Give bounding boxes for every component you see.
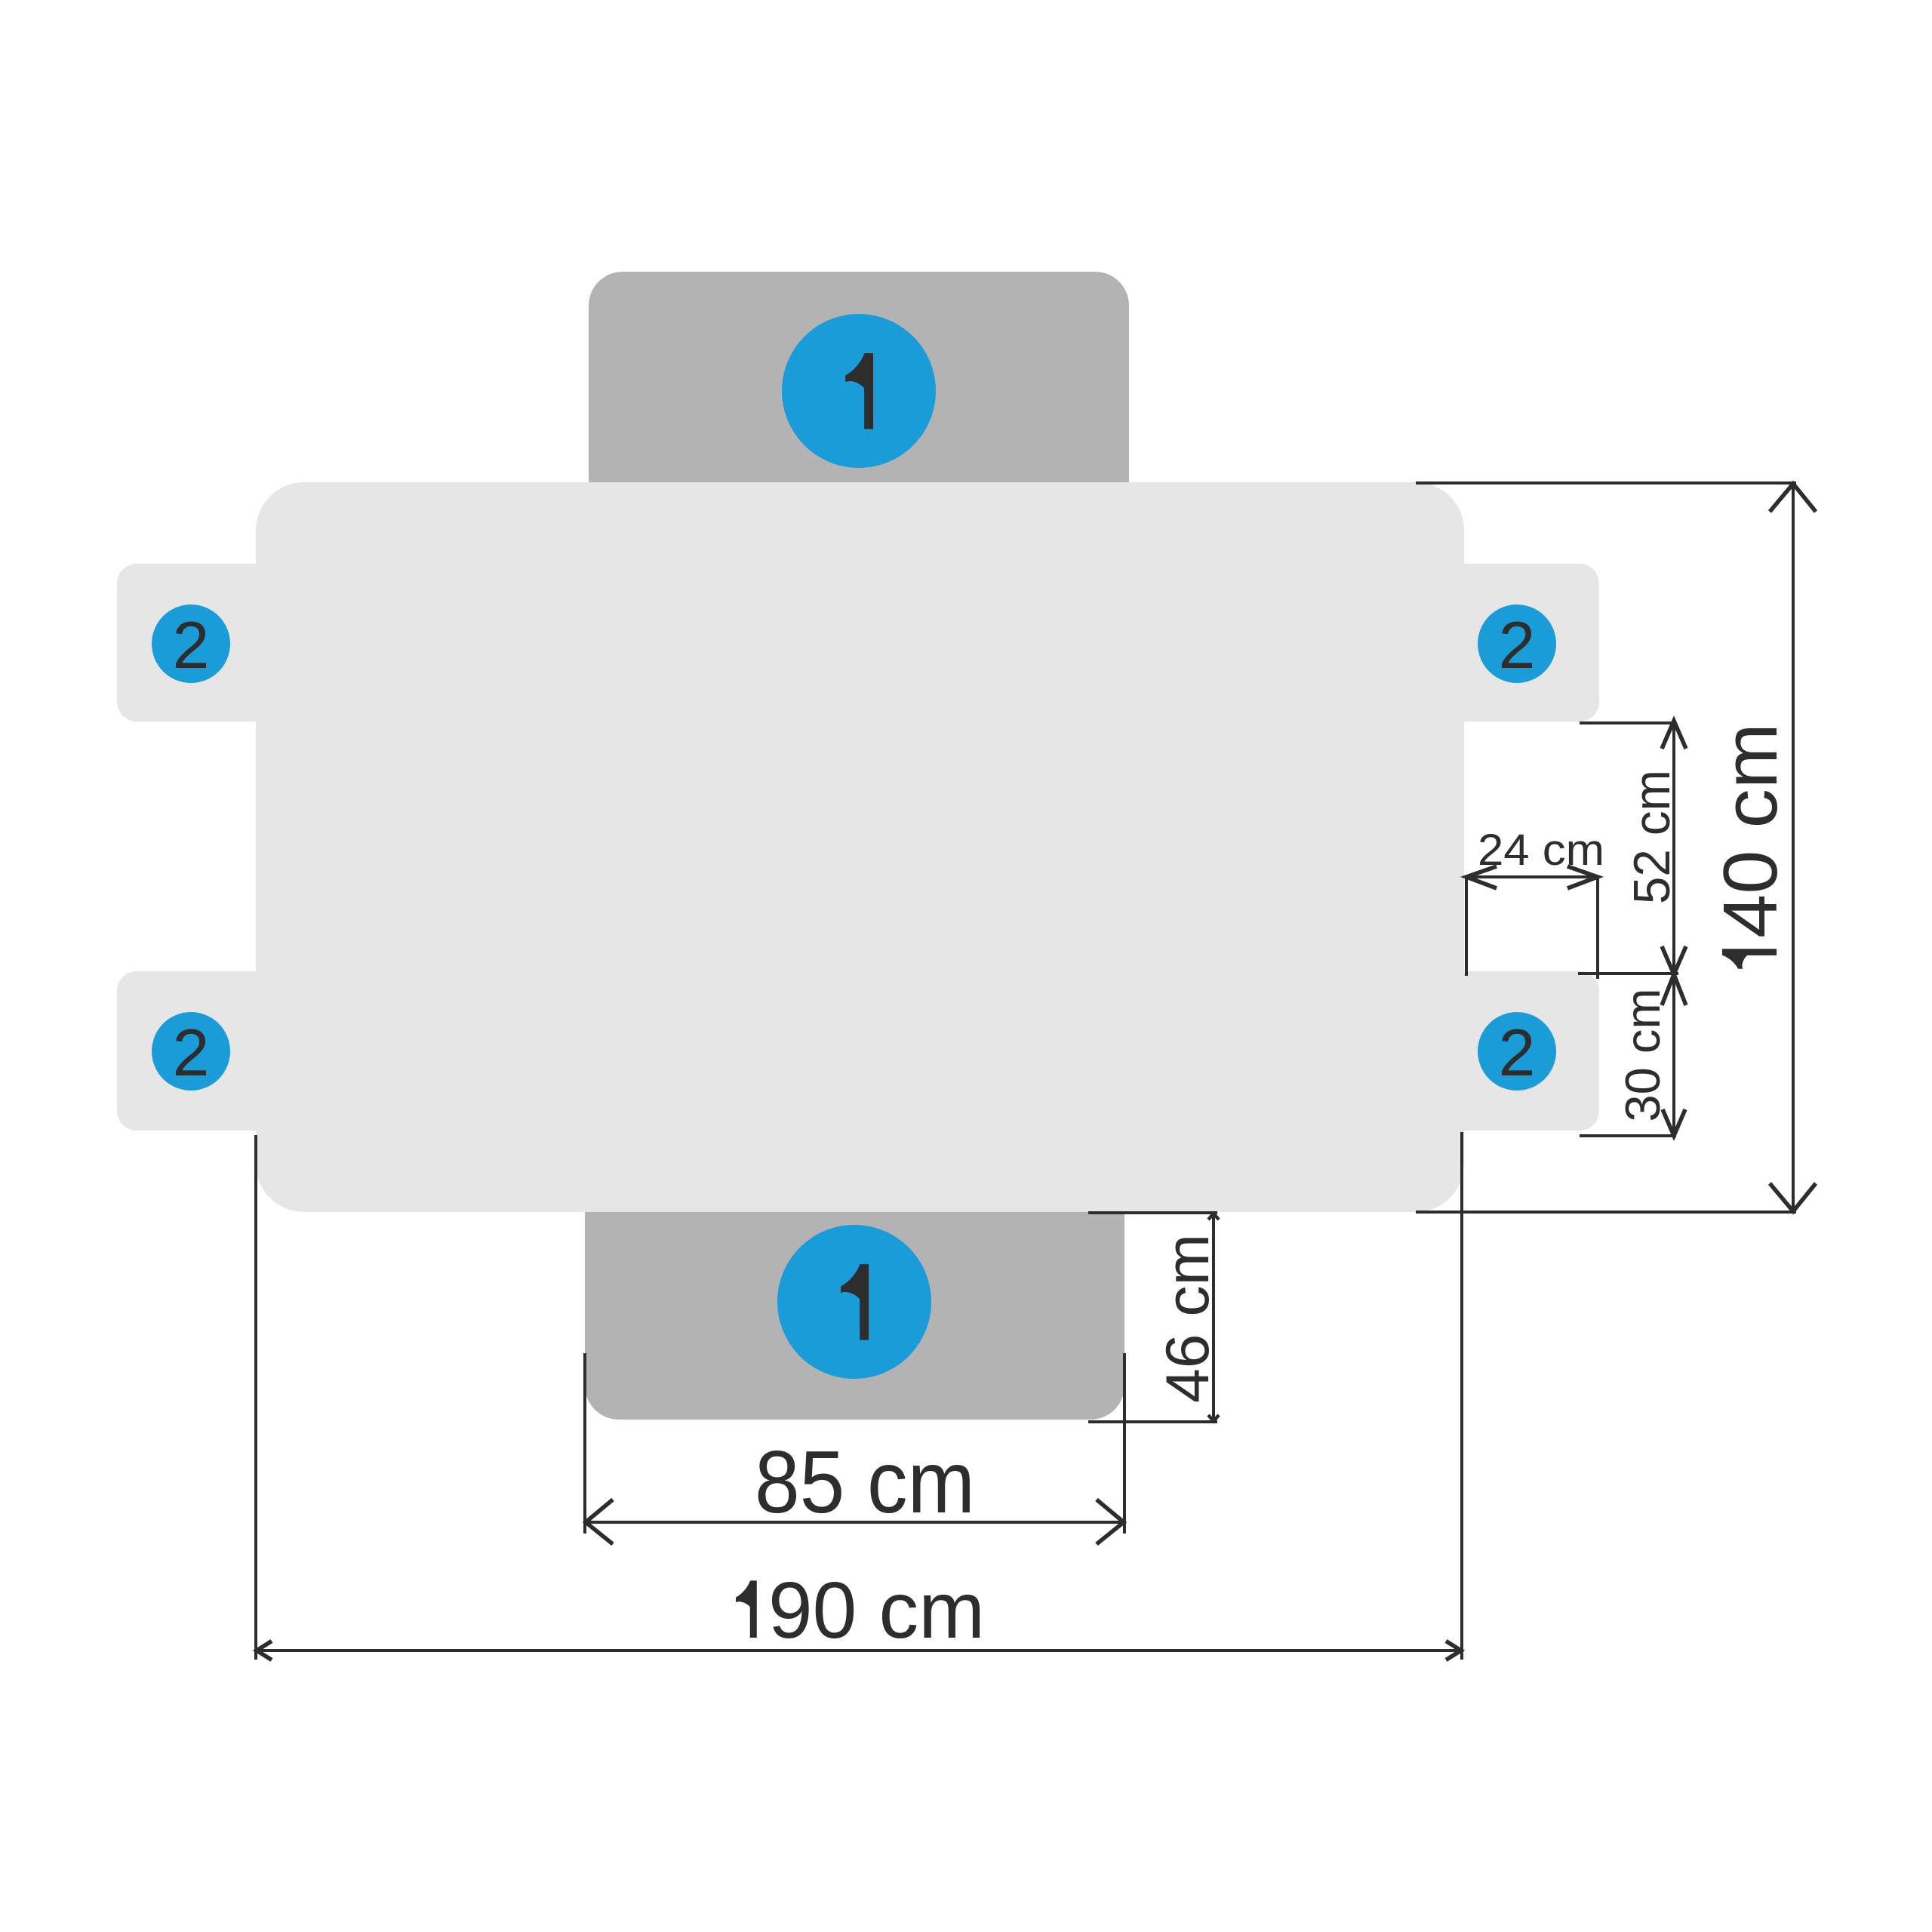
svg-text:2: 2 [1499,1015,1536,1090]
svg-text:85 cm: 85 cm [755,1432,975,1531]
svg-text:2: 2 [173,608,210,682]
svg-text:40 cm: 40 cm [1709,723,1793,938]
svg-text:46 cm: 46 cm [1154,1234,1222,1403]
svg-text:30 cm: 30 cm [1615,988,1670,1121]
svg-text:2: 2 [1499,608,1536,682]
svg-text:24 cm: 24 cm [1478,826,1604,875]
svg-text:2: 2 [173,1015,210,1090]
svg-text:52 cm: 52 cm [1623,770,1681,904]
svg-text:90 cm: 90 cm [768,1566,985,1655]
